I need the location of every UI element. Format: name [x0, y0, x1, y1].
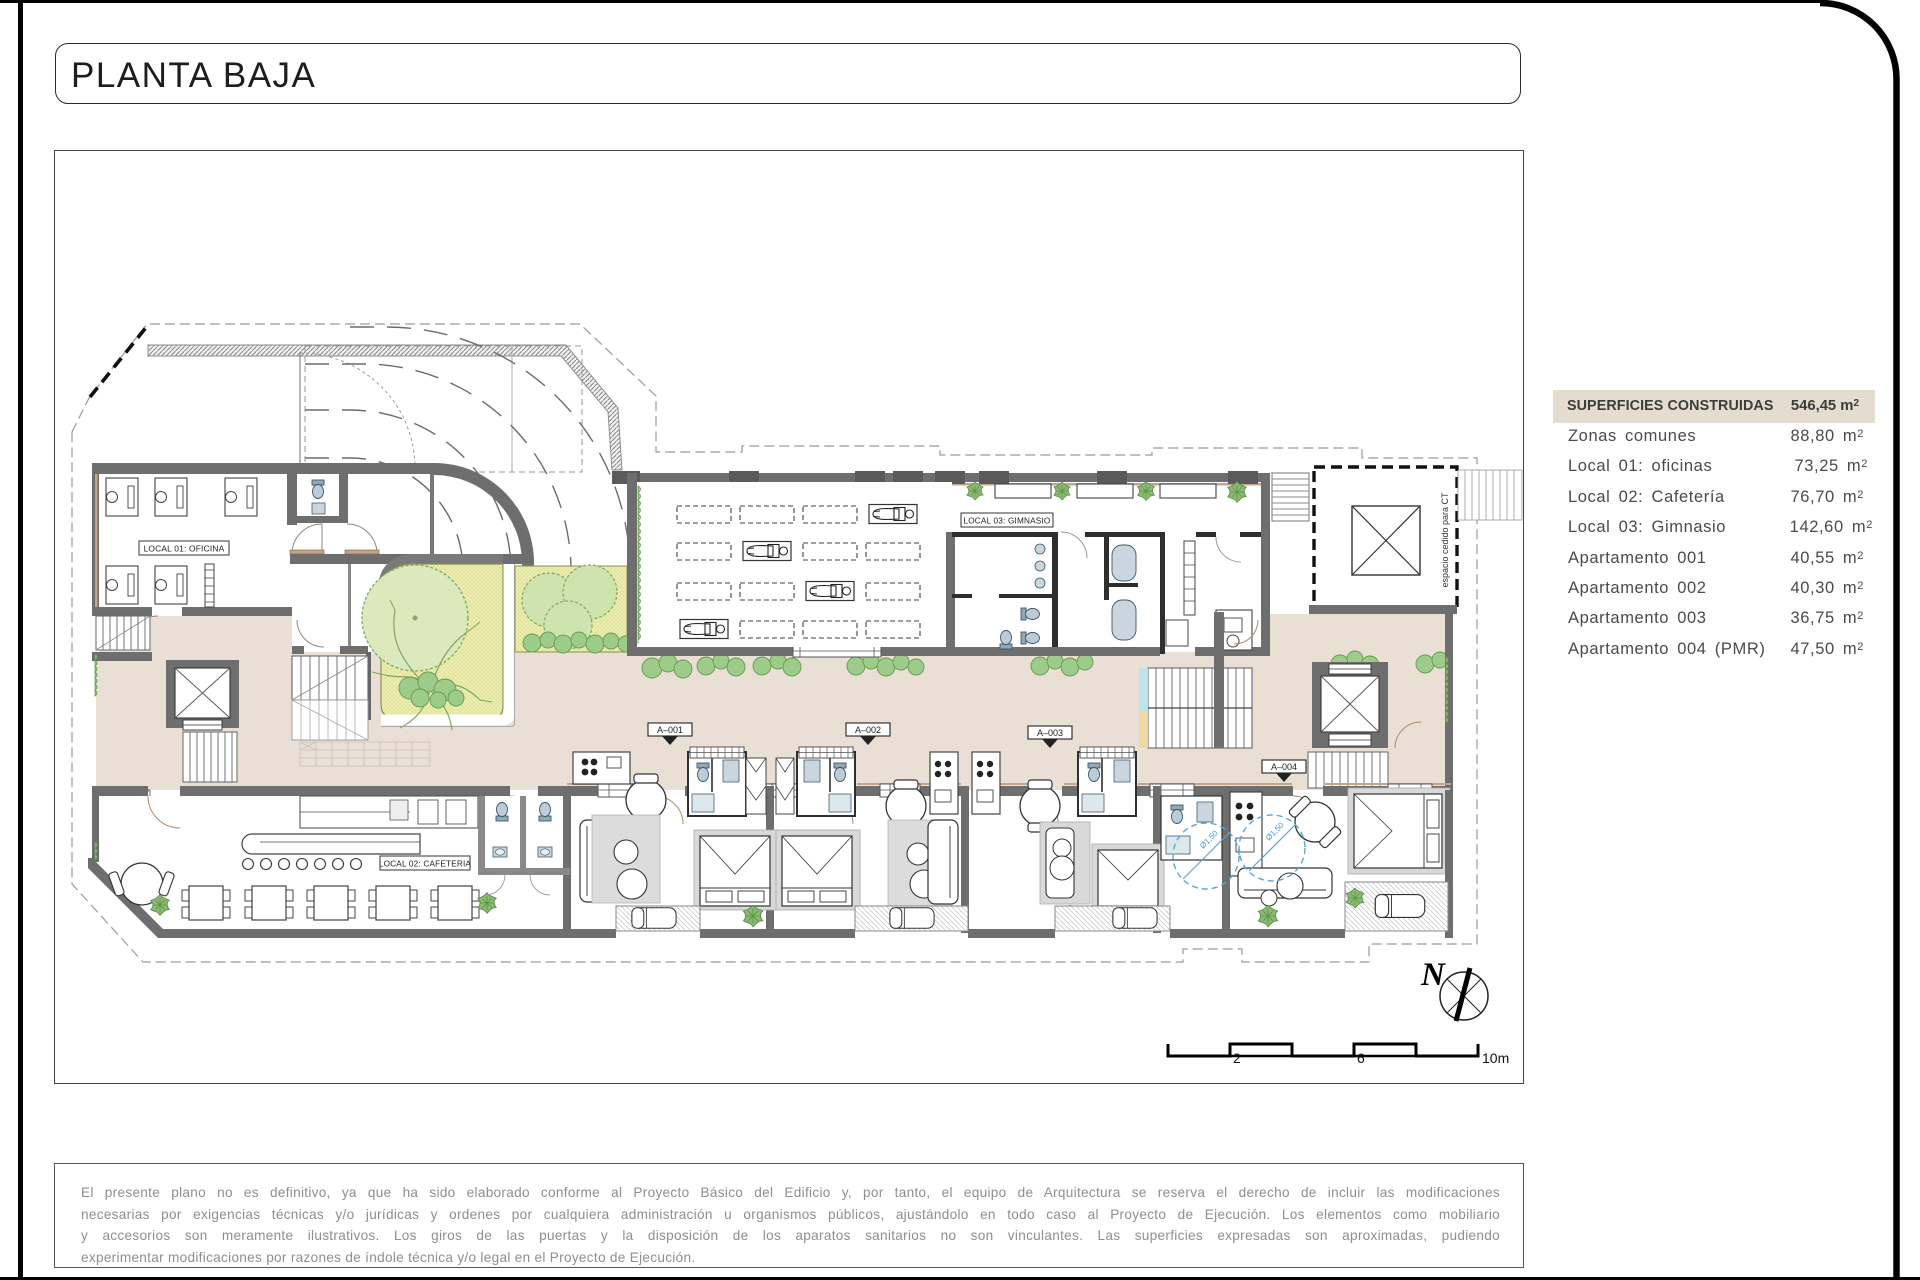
- svg-text:N: N: [1420, 957, 1446, 993]
- svg-text:LOCAL 01: OFICINA: LOCAL 01: OFICINA: [144, 544, 225, 554]
- svg-text:A–004: A–004: [1271, 762, 1297, 772]
- svg-text:10m: 10m: [1482, 1050, 1509, 1066]
- svg-text:A–001: A–001: [657, 725, 683, 735]
- svg-text:A–003: A–003: [1037, 728, 1063, 738]
- svg-text:LOCAL 03: GIMNASIO: LOCAL 03: GIMNASIO: [963, 517, 1050, 526]
- svg-text:2: 2: [1233, 1050, 1241, 1066]
- svg-text:LOCAL 02: CAFETERIA: LOCAL 02: CAFETERIA: [379, 860, 472, 869]
- svg-text:A–002: A–002: [855, 725, 881, 735]
- svg-text:espacio cedido para CT: espacio cedido para CT: [1440, 492, 1450, 588]
- svg-text:6: 6: [1357, 1050, 1365, 1066]
